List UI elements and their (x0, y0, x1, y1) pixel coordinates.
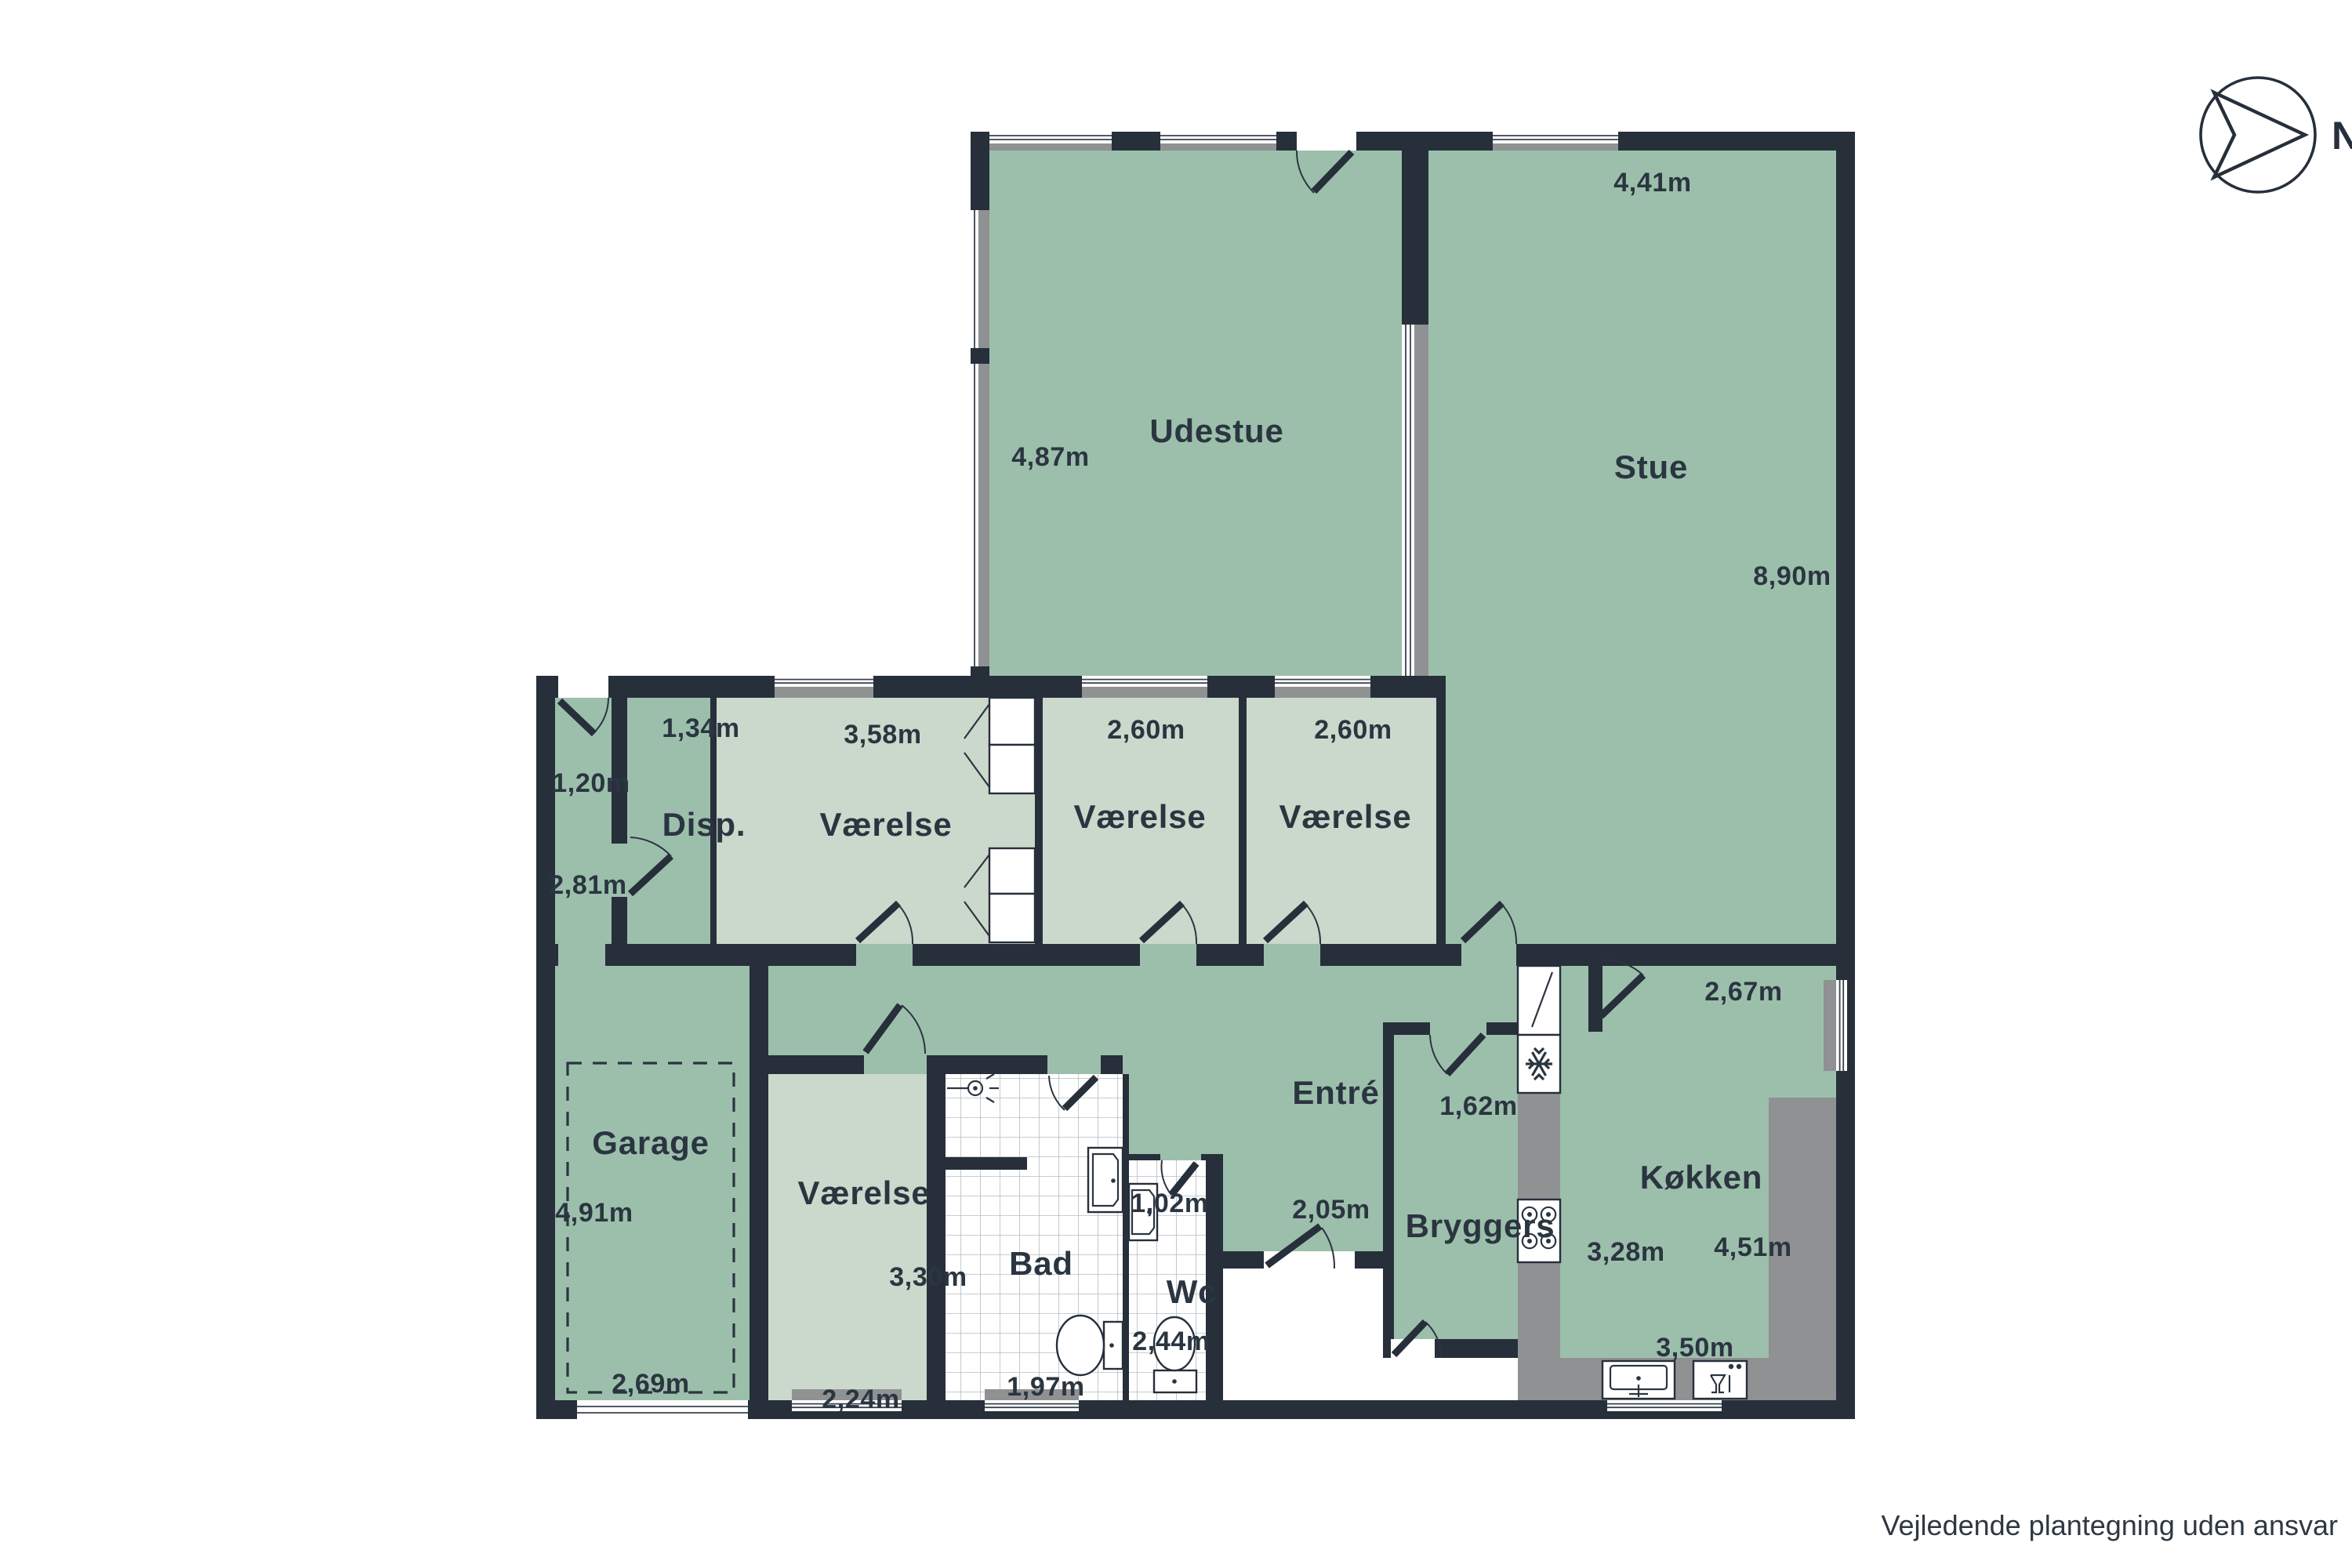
dim-stue-width: 4,41m (1613, 168, 1691, 198)
label-bad: Bad (1009, 1245, 1073, 1282)
window-udestue-stue (1402, 325, 1428, 676)
window-stue-top (1493, 132, 1618, 151)
label-garage: Garage (592, 1124, 710, 1161)
window-vaerelse2 (1082, 676, 1207, 698)
kitchen-cabinet (1518, 966, 1560, 1035)
label-wc: Wc (1167, 1273, 1218, 1310)
window-udestue-left-1 (971, 210, 989, 348)
window-vaerelse3 (1275, 676, 1370, 698)
floorplan-page: Udestue 4,87m Stue 4,41m 8,90m 1,34m Dis… (0, 0, 2352, 1568)
dim-bryggers-width: 1,62m (1439, 1091, 1517, 1121)
dim-stue-depth: 8,90m (1753, 561, 1831, 591)
room-vaerelse4-floor (768, 1055, 927, 1400)
north-arrow-icon (2214, 93, 2305, 177)
bad-toilet-icon (1057, 1316, 1123, 1375)
fridge-icon (1518, 1035, 1560, 1093)
dim-garage-width: 2,69m (612, 1369, 689, 1399)
room-gang-floor (555, 698, 612, 944)
dim-bad-width: 1,97m (1007, 1372, 1084, 1402)
label-vaerelse2: Værelse (1073, 798, 1206, 835)
label-udestue: Udestue (1149, 412, 1283, 449)
dim-koekken-width: 4,51m (1714, 1232, 1791, 1262)
dim-koekken-depth: 3,28m (1587, 1237, 1664, 1267)
label-stue: Stue (1614, 448, 1688, 485)
window-udestue-top-2 (1160, 132, 1276, 151)
dim-disp-width: 1,34m (662, 713, 739, 743)
label-koekken: Køkken (1640, 1159, 1763, 1196)
floors (555, 151, 1836, 1419)
dim-gang-width: 1,20m (552, 768, 630, 798)
dim-koekken-top: 2,67m (1704, 977, 1782, 1007)
dim-vaerelse4-depth: 3,30m (889, 1262, 967, 1292)
label-bryggers: Bryggers (1406, 1207, 1555, 1244)
dim-udestue-depth: 4,87m (1011, 442, 1089, 472)
dim-wc-width: 1,02m (1131, 1189, 1208, 1218)
label-vaerelse3: Værelse (1279, 798, 1411, 835)
garage-door (577, 1400, 748, 1419)
dim-vaerelse1-width: 3,58m (844, 720, 921, 750)
kitchen-sink-icon (1602, 1361, 1675, 1399)
room-stue-floor (1428, 151, 1836, 944)
dim-vaerelse2-width: 2,60m (1107, 715, 1185, 745)
label-vaerelse4: Værelse (797, 1174, 930, 1211)
label-vaerelse1: Værelse (819, 806, 952, 843)
shower-partition-wall (946, 1157, 1027, 1170)
compass-north-label: N (2332, 114, 2352, 158)
window-udestue-top-1 (989, 132, 1112, 151)
dim-koekken-bottom: 3,50m (1656, 1333, 1733, 1363)
dim-entre-width: 2,05m (1292, 1195, 1370, 1225)
window-udestue-left-2 (971, 364, 989, 666)
label-disp: Disp. (662, 806, 746, 843)
dim-wc-depth: 2,44m (1132, 1327, 1210, 1356)
dishwasher-icon (1693, 1361, 1747, 1399)
dim-garage-depth: 4,91m (555, 1198, 633, 1228)
dim-vaerelse4-width: 2,24m (822, 1385, 899, 1414)
bad-sink-icon (1088, 1148, 1123, 1212)
dim-vaerelse3-width: 2,60m (1314, 715, 1392, 745)
window-vaerelse1 (775, 676, 873, 698)
floorplan-drawing: Udestue 4,87m Stue 4,41m 8,90m 1,34m Dis… (0, 0, 2352, 1568)
compass: N (2201, 78, 2352, 192)
room-garage-floor (555, 966, 750, 1400)
dim-gang-depth: 2,81m (549, 870, 626, 900)
window-koekken-right (1824, 980, 1847, 1071)
footer-disclaimer: Vejledende plantegning uden ansvar (1882, 1509, 2339, 1541)
label-entre: Entré (1292, 1074, 1379, 1111)
